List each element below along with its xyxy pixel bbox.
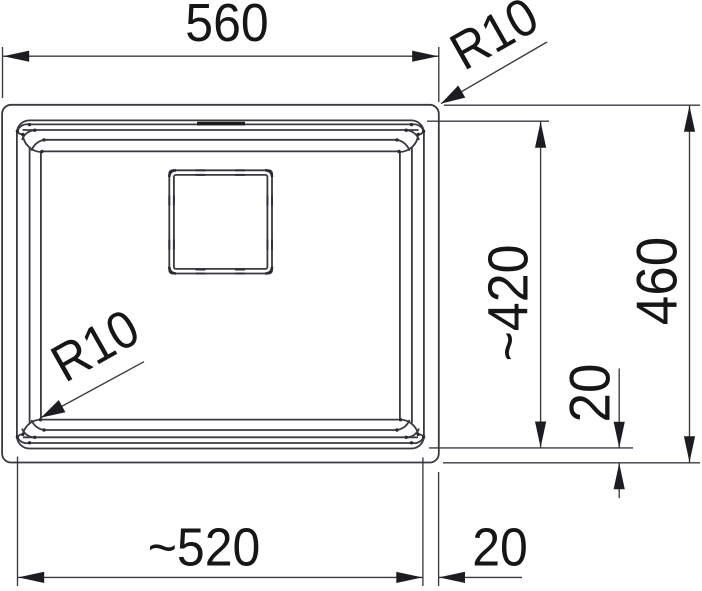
svg-text:20: 20 [472, 518, 528, 578]
svg-text:20: 20 [558, 364, 622, 423]
svg-text:~520: ~520 [148, 518, 261, 578]
svg-text:560: 560 [185, 0, 268, 53]
svg-text:~420: ~420 [478, 244, 540, 361]
svg-text:460: 460 [625, 237, 689, 325]
